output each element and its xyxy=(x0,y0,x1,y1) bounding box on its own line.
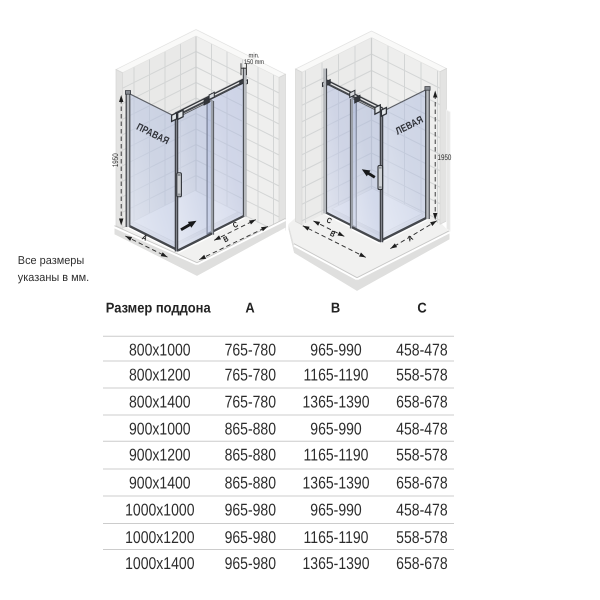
svg-text:965-990: 965-990 xyxy=(310,341,361,360)
svg-text:900x1000: 900x1000 xyxy=(129,419,191,438)
svg-text:B: B xyxy=(331,301,340,317)
svg-text:1000x1000: 1000x1000 xyxy=(125,500,194,519)
svg-text:965-990: 965-990 xyxy=(310,500,361,519)
svg-text:458-478: 458-478 xyxy=(396,500,447,519)
svg-text:658-678: 658-678 xyxy=(396,554,447,573)
svg-text:865-880: 865-880 xyxy=(225,446,276,465)
svg-text:1165-1190: 1165-1190 xyxy=(304,446,369,465)
svg-text:1950: 1950 xyxy=(111,153,120,167)
svg-text:558-578: 558-578 xyxy=(396,365,447,384)
svg-text:1000x1400: 1000x1400 xyxy=(125,554,194,573)
svg-text:Все размеры: Все размеры xyxy=(18,255,84,267)
svg-text:1165-1190: 1165-1190 xyxy=(304,528,369,547)
svg-text:865-880: 865-880 xyxy=(225,419,276,438)
svg-text:765-780: 765-780 xyxy=(225,341,276,360)
svg-text:1950: 1950 xyxy=(438,153,452,162)
svg-text:800x1200: 800x1200 xyxy=(129,365,191,384)
svg-text:965-990: 965-990 xyxy=(310,419,361,438)
svg-text:765-780: 765-780 xyxy=(225,392,276,411)
svg-text:900x1400: 900x1400 xyxy=(129,473,191,492)
svg-text:965-980: 965-980 xyxy=(225,500,276,519)
svg-text:658-678: 658-678 xyxy=(396,473,447,492)
svg-text:1365-1390: 1365-1390 xyxy=(302,473,369,492)
svg-text:658-678: 658-678 xyxy=(396,392,447,411)
svg-text:965-980: 965-980 xyxy=(225,554,276,573)
svg-text:900x1200: 900x1200 xyxy=(129,446,191,465)
svg-text:Размер поддона: Размер поддона xyxy=(106,301,211,317)
svg-text:458-478: 458-478 xyxy=(396,419,447,438)
svg-text:1165-1190: 1165-1190 xyxy=(304,365,369,384)
svg-text:150 mm: 150 mm xyxy=(244,59,264,66)
svg-text:558-578: 558-578 xyxy=(396,528,447,547)
svg-text:C: C xyxy=(417,301,426,317)
svg-text:965-980: 965-980 xyxy=(225,528,276,547)
svg-text:458-478: 458-478 xyxy=(396,341,447,360)
svg-text:A: A xyxy=(245,301,254,317)
svg-text:указаны в мм.: указаны в мм. xyxy=(18,272,89,284)
svg-text:1000x1200: 1000x1200 xyxy=(125,528,194,547)
svg-text:1365-1390: 1365-1390 xyxy=(302,392,369,411)
svg-text:800x1000: 800x1000 xyxy=(129,341,191,360)
svg-text:765-780: 765-780 xyxy=(225,365,276,384)
svg-text:558-578: 558-578 xyxy=(396,446,447,465)
svg-text:1365-1390: 1365-1390 xyxy=(302,554,369,573)
svg-text:865-880: 865-880 xyxy=(225,473,276,492)
svg-text:800x1400: 800x1400 xyxy=(129,392,191,411)
